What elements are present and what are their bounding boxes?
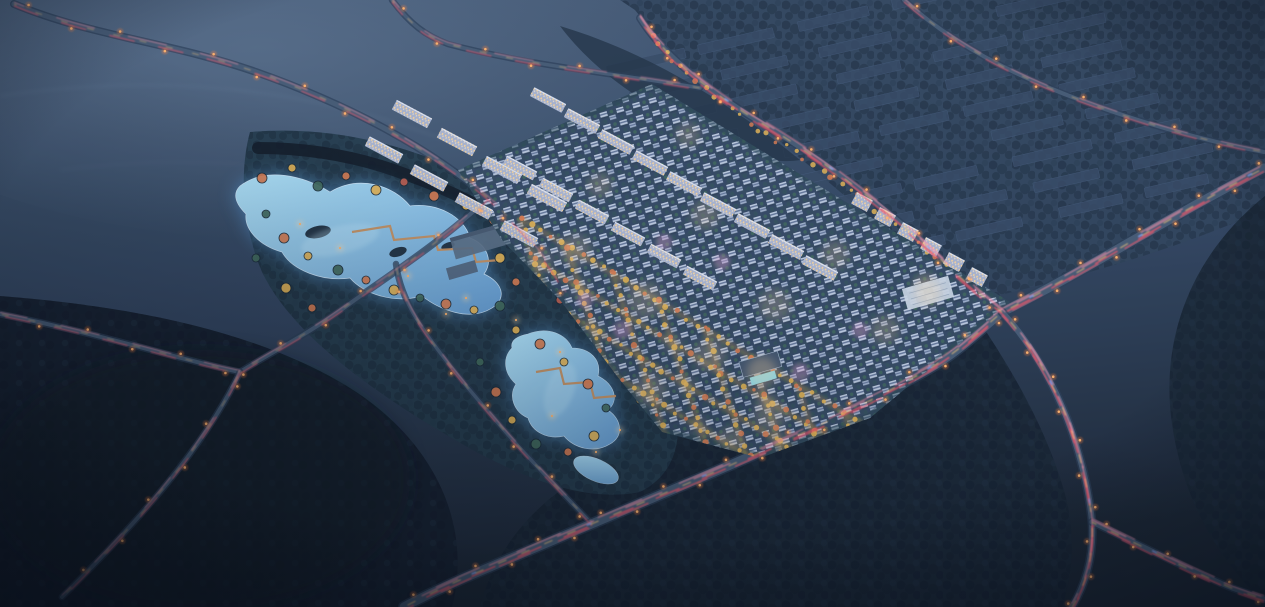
aerial-masterplan-render bbox=[0, 0, 1265, 607]
vignette bbox=[0, 0, 1265, 607]
